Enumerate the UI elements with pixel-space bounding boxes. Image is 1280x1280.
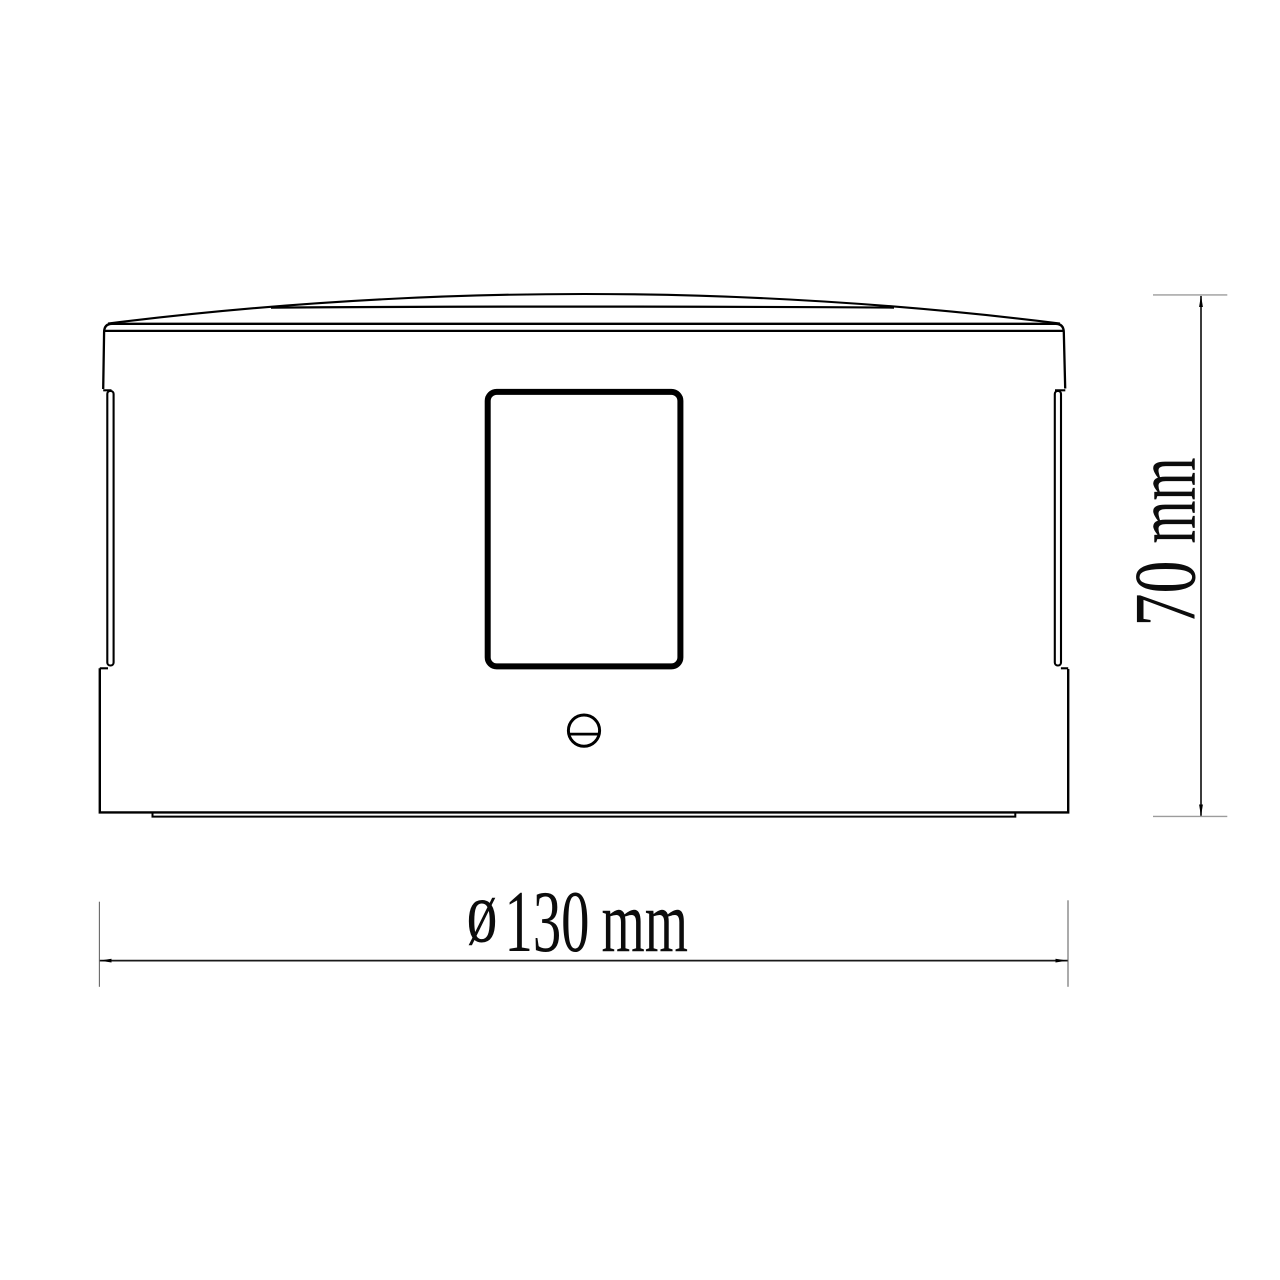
svg-text:70: 70 xyxy=(1118,561,1215,627)
svg-text:mm: mm xyxy=(602,874,689,971)
svg-text:130: 130 xyxy=(505,874,590,971)
svg-text:ø: ø xyxy=(467,865,498,962)
svg-text:mm: mm xyxy=(1118,458,1215,544)
